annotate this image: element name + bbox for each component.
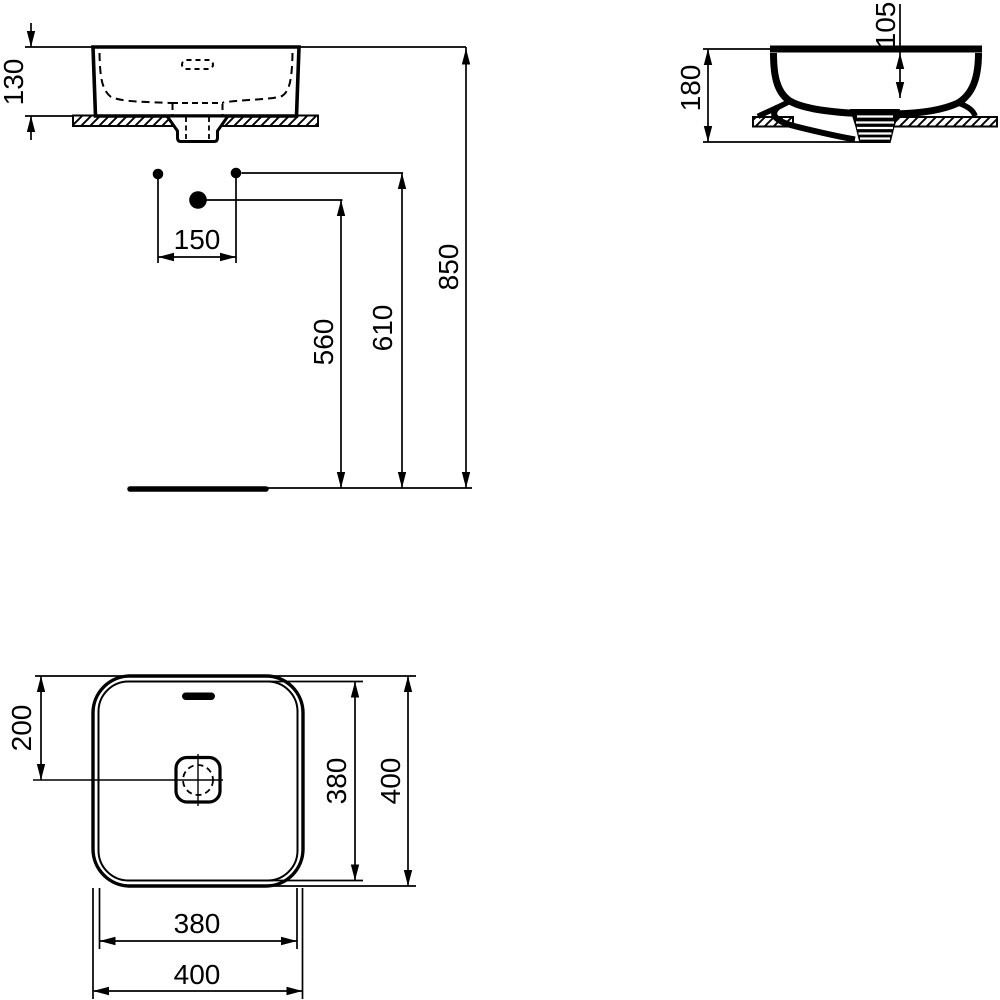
- arrowhead: [220, 253, 236, 261]
- dim-400h-label: 400: [174, 959, 221, 990]
- fixing-point-right: [231, 168, 242, 179]
- arrowhead: [462, 49, 470, 65]
- technical-drawing-page: 130 150 560 610 850: [0, 0, 1000, 1000]
- arrowhead: [896, 82, 904, 98]
- side-section-view: 180 105: [675, 2, 997, 143]
- plan-view: 200 380 400 380: [6, 676, 416, 999]
- arrowhead: [100, 937, 116, 945]
- dim-105-label: 105: [870, 2, 901, 49]
- drain-connection-point: [189, 191, 207, 209]
- arrowhead: [404, 870, 412, 886]
- arrowhead: [704, 126, 712, 142]
- dimension-380-horizontal: 380: [100, 888, 298, 949]
- arrowhead: [398, 472, 406, 488]
- arrowhead: [93, 987, 109, 995]
- dimension-610: 610: [367, 173, 406, 488]
- arrowhead: [158, 253, 174, 261]
- fixing-point-left: [153, 169, 164, 180]
- arrowhead: [404, 676, 412, 692]
- dimension-560: 560: [308, 200, 345, 488]
- arrowhead: [462, 472, 470, 488]
- arrowhead: [337, 200, 345, 216]
- arrowhead: [351, 682, 359, 698]
- dim-850-label: 850: [433, 244, 464, 291]
- arrowhead: [37, 764, 45, 780]
- dimension-400-horizontal: 400: [93, 888, 303, 999]
- arrowhead: [337, 472, 345, 488]
- front-view: 130 150 560 610 850: [0, 23, 472, 489]
- dim-180-label: 180: [675, 65, 706, 112]
- arrowhead: [27, 31, 35, 47]
- arrowhead: [351, 865, 359, 881]
- overflow-slot: [182, 693, 215, 701]
- arrowhead: [896, 53, 904, 69]
- washbasin-dimension-drawing: 130 150 560 610 850: [0, 0, 1000, 1000]
- dim-610-label: 610: [367, 305, 398, 352]
- arrowhead: [287, 987, 303, 995]
- dimension-850: 850: [433, 47, 470, 488]
- dim-130-label: 130: [0, 59, 29, 106]
- dim-560-label: 560: [308, 319, 339, 366]
- dim-400v-label: 400: [375, 758, 406, 805]
- arrowhead: [704, 49, 712, 65]
- dim-150-label: 150: [174, 224, 221, 255]
- foot-section-right: [957, 103, 975, 117]
- arrowhead: [37, 676, 45, 692]
- arrowhead: [398, 173, 406, 189]
- drain-funnel: [167, 116, 228, 142]
- dim-200-label: 200: [6, 705, 37, 752]
- basin-outline: [93, 47, 299, 116]
- dim-380v-label: 380: [321, 758, 352, 805]
- dimension-200: 200: [6, 676, 45, 780]
- dimension-130: 130: [0, 23, 74, 140]
- dimension-150: 150: [158, 224, 236, 261]
- dim-380h-label: 380: [174, 908, 221, 939]
- arrowhead: [27, 116, 35, 132]
- counter-section-hatch-right: [893, 117, 997, 127]
- arrowhead: [281, 937, 297, 945]
